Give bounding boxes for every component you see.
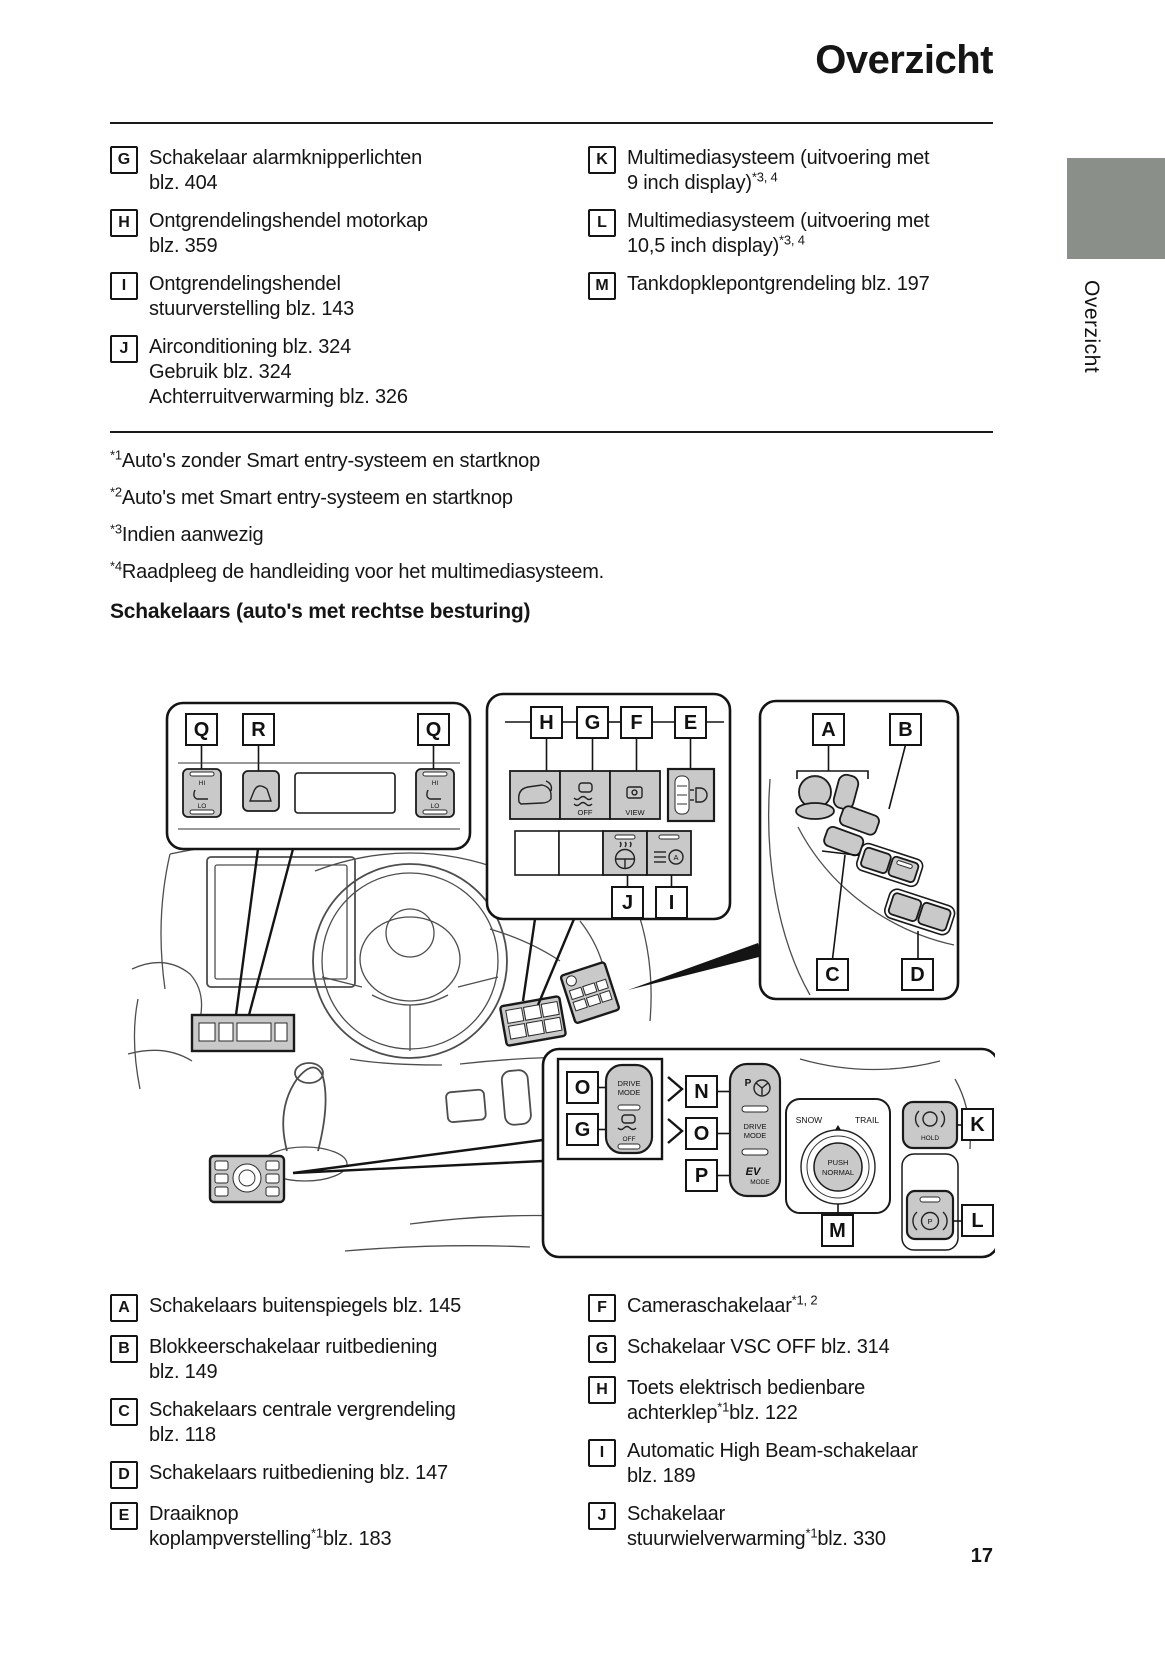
item-text: Cameraschakelaar*1, 2 bbox=[627, 1294, 817, 1322]
section-heading: Schakelaars (auto's met rechtse besturin… bbox=[110, 599, 993, 625]
svg-text:MODE: MODE bbox=[750, 1179, 770, 1186]
parking-brake-switch: P bbox=[907, 1191, 953, 1239]
list-item: GSchakelaar alarmknipperlichtenblz. 404 bbox=[110, 146, 588, 196]
svg-text:C: C bbox=[825, 964, 839, 986]
svg-text:DRIVE: DRIVE bbox=[744, 1122, 767, 1131]
switch-diagram: Q R Q bbox=[110, 659, 993, 1268]
item-text: Multimediasysteem (uitvoering met9 inch … bbox=[627, 146, 929, 196]
overview-list-right: KMultimediasysteem (uitvoering met9 inch… bbox=[588, 146, 993, 423]
item-label-box: G bbox=[588, 1335, 616, 1363]
list-item: MTankdopklepontgrendeling blz. 197 bbox=[588, 272, 993, 300]
svg-text:G: G bbox=[575, 1119, 591, 1141]
svg-text:MODE: MODE bbox=[618, 1088, 641, 1097]
callout-e: E bbox=[675, 707, 706, 738]
list-item: IOntgrendelingshendelstuurverstelling bl… bbox=[110, 272, 588, 322]
page-title: Overzicht bbox=[110, 38, 993, 82]
callout-b: B bbox=[890, 714, 921, 745]
callout-o-col: O bbox=[686, 1118, 717, 1149]
inset-dash-switches: H G F E bbox=[487, 694, 730, 919]
item-label-box: M bbox=[588, 272, 616, 300]
svg-text:DRIVE: DRIVE bbox=[618, 1079, 641, 1088]
svg-text:N: N bbox=[694, 1081, 708, 1103]
callout-q2: Q bbox=[418, 714, 449, 745]
item-text: Schakelaar VSC OFF blz. 314 bbox=[627, 1335, 890, 1363]
list-item: HToets elektrisch bedienbareachterklep*1… bbox=[588, 1376, 993, 1426]
svg-text:L: L bbox=[971, 1210, 983, 1232]
list-item: KMultimediasysteem (uitvoering met9 inch… bbox=[588, 146, 993, 196]
ahb-button: A bbox=[647, 831, 691, 875]
brake-hold-button: HOLD bbox=[903, 1102, 957, 1148]
drive-mode-button-small: DRIVE MODE OFF bbox=[606, 1065, 652, 1153]
divider-top bbox=[110, 122, 993, 124]
callout-l: L bbox=[962, 1205, 993, 1236]
item-label-box: I bbox=[110, 272, 138, 300]
svg-text:Q: Q bbox=[194, 719, 210, 741]
list-item: CSchakelaars centrale vergrendelingblz. … bbox=[110, 1398, 588, 1448]
svg-text:A: A bbox=[821, 719, 835, 741]
item-label-box: A bbox=[110, 1294, 138, 1322]
seat-recline-button bbox=[243, 771, 279, 811]
callout-o-drive: O bbox=[567, 1072, 598, 1103]
chapter-tab-label: Overzicht bbox=[1079, 280, 1103, 373]
list-item: HOntgrendelingshendel motorkapblz. 359 bbox=[110, 209, 588, 259]
list-item: DSchakelaars ruitbediening blz. 147 bbox=[110, 1461, 588, 1489]
item-label-box: F bbox=[588, 1294, 616, 1322]
item-label-box: L bbox=[588, 209, 616, 237]
center-display bbox=[207, 857, 355, 987]
camera-view-button: VIEW bbox=[610, 771, 660, 819]
overview-list: GSchakelaar alarmknipperlichtenblz. 404H… bbox=[110, 146, 993, 423]
svg-text:PUSH: PUSH bbox=[828, 1158, 849, 1167]
svg-text:HI: HI bbox=[432, 780, 439, 787]
item-text: Multimediasysteem (uitvoering met10,5 in… bbox=[627, 209, 929, 259]
footnote: *1Auto's zonder Smart entry-systeem en s… bbox=[110, 449, 993, 474]
tailgate-button bbox=[510, 771, 560, 819]
svg-text:B: B bbox=[898, 719, 912, 741]
svg-text:OFF: OFF bbox=[578, 808, 593, 817]
svg-text:HI: HI bbox=[199, 780, 206, 787]
svg-text:Q: Q bbox=[426, 719, 442, 741]
list-item: JSchakelaarstuurwielverwarming*1blz. 330 bbox=[588, 1502, 993, 1552]
svg-text:J: J bbox=[622, 892, 633, 914]
svg-text:LO: LO bbox=[198, 803, 207, 810]
callout-p-col: P bbox=[686, 1160, 717, 1191]
svg-text:F: F bbox=[630, 712, 642, 734]
list-item: JAirconditioning blz. 324Gebruik blz. 32… bbox=[110, 335, 588, 410]
steering-heat-button bbox=[603, 831, 647, 875]
item-label-box: E bbox=[110, 1502, 138, 1530]
vsc-off-button: OFF bbox=[560, 771, 610, 819]
inset-door-panel: A B bbox=[760, 701, 958, 999]
svg-text:P: P bbox=[927, 1217, 932, 1226]
callout-a: A bbox=[813, 714, 844, 745]
callout-g-vsc: G bbox=[567, 1114, 598, 1145]
svg-text:E: E bbox=[684, 712, 697, 734]
item-text: Tankdopklepontgrendeling blz. 197 bbox=[627, 272, 930, 300]
list-item: GSchakelaar VSC OFF blz. 314 bbox=[588, 1335, 993, 1363]
item-text: Ontgrendelingshendelstuurverstelling blz… bbox=[149, 272, 354, 322]
item-text: Schakelaar alarmknipperlichtenblz. 404 bbox=[149, 146, 422, 196]
page-number: 17 bbox=[971, 1545, 993, 1568]
item-label-box: I bbox=[588, 1439, 616, 1467]
item-text: Blokkeerschakelaar ruitbedieningblz. 149 bbox=[149, 1335, 437, 1385]
item-text: Schakelaars centrale vergrendelingblz. 1… bbox=[149, 1398, 456, 1448]
svg-text:A: A bbox=[673, 853, 678, 862]
mirror-knob bbox=[796, 776, 834, 819]
svg-text:TRAIL: TRAIL bbox=[855, 1115, 879, 1125]
callout-k: K bbox=[962, 1109, 993, 1140]
item-label-box: G bbox=[110, 146, 138, 174]
callout-i: I bbox=[656, 887, 687, 918]
list-item: LMultimediasysteem (uitvoering met10,5 i… bbox=[588, 209, 993, 259]
svg-text:OFF: OFF bbox=[623, 1136, 636, 1143]
item-text: Automatic High Beam-schakelaarblz. 189 bbox=[627, 1439, 918, 1489]
blank-slot bbox=[295, 773, 395, 813]
door-switch-panel bbox=[560, 962, 619, 1024]
svg-text:K: K bbox=[970, 1114, 985, 1136]
svg-text:O: O bbox=[694, 1123, 710, 1145]
switch-list: ASchakelaars buitenspiegels blz. 145BBlo… bbox=[110, 1294, 993, 1565]
inset-seat-panel: Q R Q bbox=[167, 703, 470, 849]
callout-d: D bbox=[902, 959, 933, 990]
blank-slot bbox=[515, 831, 559, 875]
footnote: *3Indien aanwezig bbox=[110, 523, 993, 548]
item-text: Schakelaars ruitbediening blz. 147 bbox=[149, 1461, 448, 1489]
item-label-box: H bbox=[110, 209, 138, 237]
list-item: ASchakelaars buitenspiegels blz. 145 bbox=[110, 1294, 588, 1322]
item-text: Draaiknopkoplampverstelling*1blz. 183 bbox=[149, 1502, 391, 1552]
seat-heater-button-right: HI LO bbox=[416, 769, 454, 817]
svg-text:P: P bbox=[745, 1078, 752, 1089]
svg-text:H: H bbox=[539, 712, 553, 734]
callout-c: C bbox=[817, 959, 848, 990]
console-panel bbox=[210, 1156, 284, 1202]
headlight-leveling-dial bbox=[668, 769, 714, 821]
list-item: FCameraschakelaar*1, 2 bbox=[588, 1294, 993, 1322]
steering-wheel bbox=[313, 864, 507, 1058]
seat-heater-button-left: HI LO bbox=[183, 769, 221, 817]
item-text: Schakelaarstuurwielverwarming*1blz. 330 bbox=[627, 1502, 886, 1552]
callout-r: R bbox=[243, 714, 274, 745]
svg-text:O: O bbox=[575, 1077, 591, 1099]
item-text: Ontgrendelingshendel motorkapblz. 359 bbox=[149, 209, 428, 259]
svg-text:LO: LO bbox=[431, 803, 440, 810]
svg-text:I: I bbox=[669, 892, 675, 914]
callout-g-panel: G bbox=[577, 707, 608, 738]
item-label-box: H bbox=[588, 1376, 616, 1404]
item-text: Toets elektrisch bedienbareachterklep*1b… bbox=[627, 1376, 865, 1426]
inset-console: O G DRIVE MODE bbox=[543, 1049, 995, 1257]
callout-m: M bbox=[822, 1215, 853, 1246]
callout-f: F bbox=[621, 707, 652, 738]
console-button-column: P DRIVE MODE EV MODE bbox=[730, 1064, 780, 1196]
svg-text:EV: EV bbox=[746, 1166, 762, 1178]
callout-n: N bbox=[686, 1076, 717, 1107]
svg-text:P: P bbox=[695, 1165, 708, 1187]
chapter-tab bbox=[1067, 158, 1165, 259]
item-label-box: J bbox=[110, 335, 138, 363]
terrain-dial: SNOW TRAIL PUSH NORMAL bbox=[786, 1099, 890, 1213]
item-label-box: C bbox=[110, 1398, 138, 1426]
callout-j: J bbox=[612, 887, 643, 918]
climate-panel bbox=[192, 1015, 294, 1051]
item-text: Schakelaars buitenspiegels blz. 145 bbox=[149, 1294, 461, 1322]
overview-list-left: GSchakelaar alarmknipperlichtenblz. 404H… bbox=[110, 146, 588, 423]
item-label-box: K bbox=[588, 146, 616, 174]
item-text: Airconditioning blz. 324Gebruik blz. 324… bbox=[149, 335, 408, 410]
item-label-box: D bbox=[110, 1461, 138, 1489]
switch-list-right: FCameraschakelaar*1, 2GSchakelaar VSC OF… bbox=[588, 1294, 993, 1565]
divider-mid bbox=[110, 431, 993, 433]
svg-text:HOLD: HOLD bbox=[921, 1135, 939, 1142]
callout-q1: Q bbox=[186, 714, 217, 745]
item-label-box: J bbox=[588, 1502, 616, 1530]
item-label-box: B bbox=[110, 1335, 138, 1363]
footnotes: *1Auto's zonder Smart entry-systeem en s… bbox=[110, 449, 993, 585]
svg-text:D: D bbox=[910, 964, 924, 986]
list-item: BBlokkeerschakelaar ruitbedieningblz. 14… bbox=[110, 1335, 588, 1385]
footnote: *2Auto's met Smart entry-systeem en star… bbox=[110, 486, 993, 511]
svg-text:VIEW: VIEW bbox=[625, 808, 645, 817]
svg-text:NORMAL: NORMAL bbox=[822, 1168, 854, 1177]
svg-text:M: M bbox=[829, 1220, 846, 1242]
drive-mode-subpanel: O G DRIVE MODE bbox=[558, 1059, 662, 1159]
list-item: EDraaiknopkoplampverstelling*1blz. 183 bbox=[110, 1502, 588, 1552]
svg-text:SNOW: SNOW bbox=[796, 1115, 822, 1125]
pedals bbox=[444, 1069, 531, 1130]
footnote: *4Raadpleeg de handleiding voor het mult… bbox=[110, 560, 993, 585]
svg-text:G: G bbox=[585, 712, 601, 734]
svg-text:R: R bbox=[251, 719, 266, 741]
switch-list-left: ASchakelaars buitenspiegels blz. 145BBlo… bbox=[110, 1294, 588, 1565]
manual-page: Overzicht Overzicht GSchakelaar alarmkni… bbox=[0, 0, 1165, 1653]
blank-slot bbox=[559, 831, 603, 875]
svg-text:MODE: MODE bbox=[744, 1131, 767, 1140]
callout-h: H bbox=[531, 707, 562, 738]
list-item: IAutomatic High Beam-schakelaarblz. 189 bbox=[588, 1439, 993, 1489]
column-switch-panel bbox=[500, 996, 566, 1046]
